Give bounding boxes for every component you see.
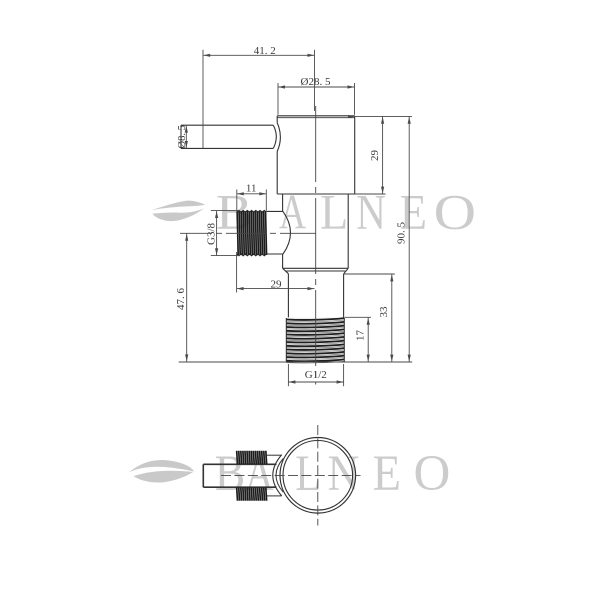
svg-text:Ø8. 5: Ø8. 5 xyxy=(177,125,188,148)
svg-text:G3/8: G3/8 xyxy=(206,223,218,246)
svg-text:E: E xyxy=(373,445,401,501)
svg-text:L: L xyxy=(295,446,321,503)
svg-text:47. 6: 47. 6 xyxy=(175,288,187,311)
svg-text:29: 29 xyxy=(271,278,283,290)
svg-text:N: N xyxy=(356,183,386,239)
svg-text:11: 11 xyxy=(246,183,257,195)
svg-text:29: 29 xyxy=(369,150,381,162)
svg-text:O: O xyxy=(414,446,451,502)
svg-text:17: 17 xyxy=(355,330,367,342)
svg-text:90. 5: 90. 5 xyxy=(395,222,407,245)
svg-text:Ø28. 5: Ø28. 5 xyxy=(301,76,331,88)
svg-text:41. 2: 41. 2 xyxy=(254,45,276,57)
svg-text:G1/2: G1/2 xyxy=(305,369,327,381)
svg-text:N: N xyxy=(328,446,360,502)
svg-text:33: 33 xyxy=(378,306,390,318)
svg-text:O: O xyxy=(434,183,476,239)
svg-text:L: L xyxy=(320,185,348,240)
